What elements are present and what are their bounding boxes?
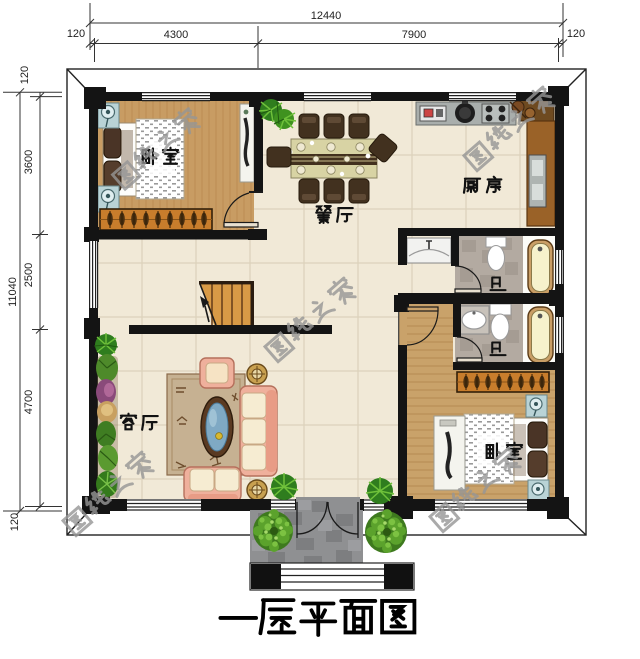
svg-text:12440: 12440: [311, 10, 342, 22]
svg-text:120: 120: [567, 28, 585, 40]
svg-text:7900: 7900: [402, 29, 426, 41]
svg-text:3600: 3600: [23, 150, 35, 174]
svg-text:2500: 2500: [23, 263, 35, 287]
svg-text:4700: 4700: [23, 390, 35, 414]
svg-text:120: 120: [9, 513, 21, 531]
svg-text:4300: 4300: [164, 29, 188, 41]
svg-text:120: 120: [67, 28, 85, 40]
svg-text:120: 120: [19, 66, 31, 84]
svg-text:11040: 11040: [7, 277, 19, 307]
